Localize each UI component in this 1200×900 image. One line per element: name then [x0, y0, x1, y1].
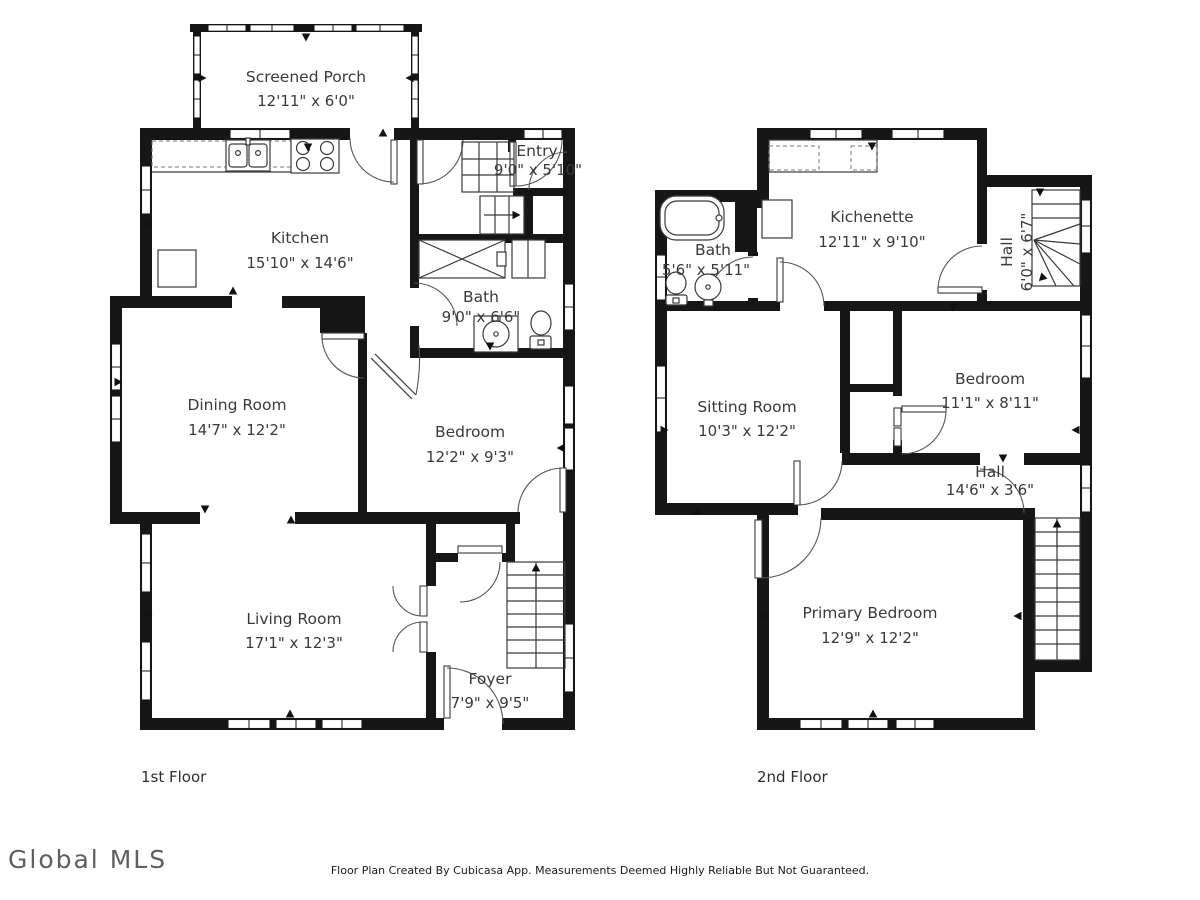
stairs-up-arrow — [532, 564, 541, 572]
room-dims-kichenette: 12'11" x 9'10" — [818, 233, 925, 251]
room-label-hall-upper: Hall — [998, 237, 1016, 267]
room-dims-bedroom1: 12'2" x 9'3" — [426, 448, 514, 466]
room-label-living-room: Living Room — [246, 610, 341, 628]
winder-stairs-arrow — [1036, 272, 1048, 284]
toilet-icon — [530, 311, 551, 349]
stairs-up-arrow-2 — [1053, 520, 1062, 528]
kichenette-appliance-icon — [762, 200, 792, 238]
second-floor-stairs — [1035, 518, 1080, 660]
room-label-bedroom2: Bedroom — [955, 370, 1025, 388]
stove-icon — [291, 139, 339, 173]
room-dims-bath2: 5'6" x 5'11" — [662, 261, 750, 279]
floor-plan-drawing: Screened Porch 12'11" x 6'0" Kitchen 15'… — [0, 0, 1200, 900]
second-floor-plan: Kichenette 12'11" x 9'10" Bath 5'6" x 5'… — [655, 128, 1092, 786]
global-mls-logo: Global MLS — [8, 845, 167, 874]
room-label-hall: Hall — [975, 463, 1005, 481]
tub-faucet-icon — [497, 252, 506, 266]
room-dims-hall: 14'6" x 3'6" — [946, 481, 1034, 499]
room-dims-hall-upper: 6'0" x 6'7" — [1018, 213, 1036, 292]
room-dims-bedroom2: 11'1" x 8'11" — [941, 394, 1039, 412]
room-label-dining-room: Dining Room — [187, 396, 286, 414]
kitchen-appliance-icon — [158, 250, 196, 287]
kitchen-sink-icon — [226, 138, 270, 171]
room-label-bath2: Bath — [695, 241, 731, 259]
room-label-foyer: Foyer — [469, 670, 513, 688]
room-dims-dining-room: 14'7" x 12'2" — [188, 421, 286, 439]
basement-stairs — [480, 196, 524, 234]
room-dims-primary-bedroom: 12'9" x 12'2" — [821, 629, 919, 647]
floor-plan-page: Screened Porch 12'11" x 6'0" Kitchen 15'… — [0, 0, 1200, 900]
room-label-entry: Entry — [516, 142, 557, 160]
foyer-stairs — [507, 562, 565, 668]
first-floor-caption: 1st Floor — [141, 768, 207, 786]
disclaimer-text: Floor Plan Created By Cubicasa App. Meas… — [331, 864, 869, 877]
room-label-kitchen: Kitchen — [271, 229, 329, 247]
room-dims-bath1: 9'0" x 6'6" — [442, 308, 521, 326]
second-floor-caption: 2nd Floor — [757, 768, 828, 786]
room-label-bath1: Bath — [463, 288, 499, 306]
first-floor-plan: Screened Porch 12'11" x 6'0" Kitchen 15'… — [110, 24, 582, 786]
room-dims-sitting-room: 10'3" x 12'2" — [698, 422, 796, 440]
room-label-sitting-room: Sitting Room — [697, 398, 796, 416]
stairs-down-arrow — [513, 211, 521, 220]
room-label-primary-bedroom: Primary Bedroom — [803, 604, 938, 622]
room-label-bedroom1: Bedroom — [435, 423, 505, 441]
room-label-kichenette: Kichenette — [830, 208, 913, 226]
room-label-screened-porch: Screened Porch — [246, 68, 366, 86]
room-dims-screened-porch: 12'11" x 6'0" — [257, 92, 355, 110]
room-dims-living-room: 17'1" x 12'3" — [245, 634, 343, 652]
room-dims-entry: 9'0" x 5'10" — [494, 161, 582, 179]
winder-stairs — [1032, 190, 1080, 286]
room-dims-kitchen: 15'10" x 14'6" — [246, 254, 353, 272]
room-dims-foyer: 7'9" x 9'5" — [451, 694, 530, 712]
